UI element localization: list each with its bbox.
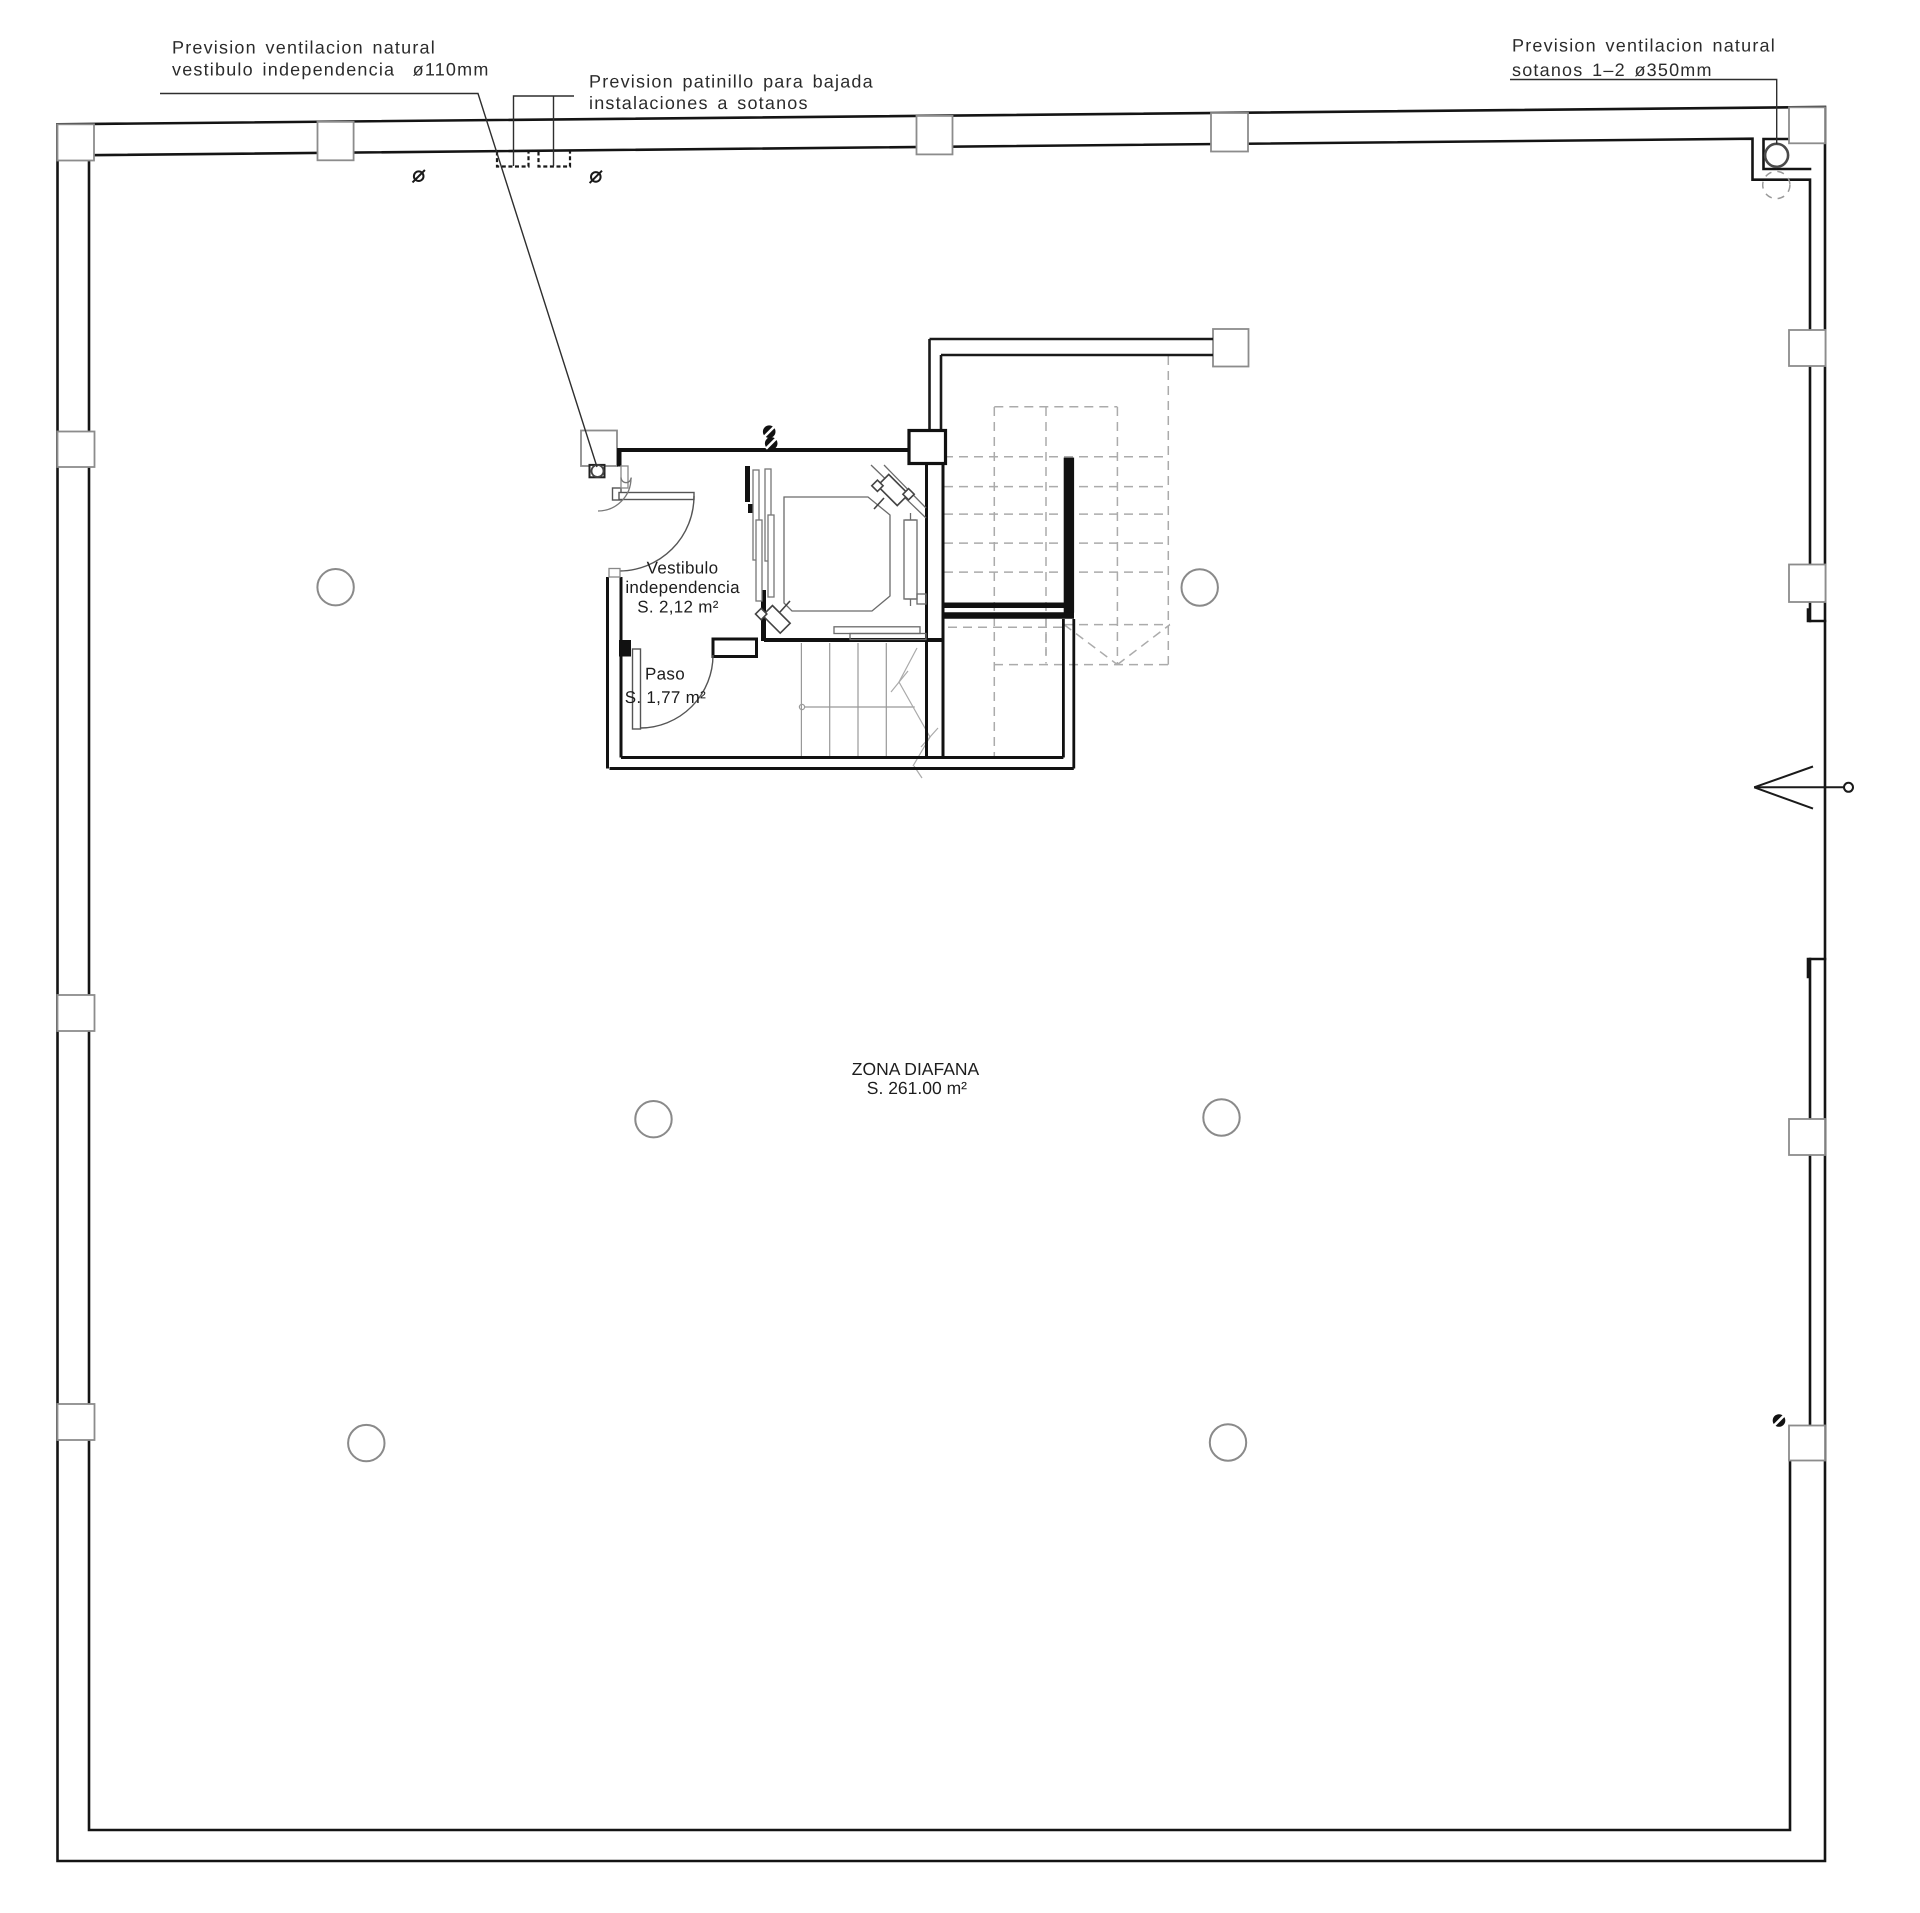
svg-text:Prevision ventilacion natural: Prevision ventilacion natural [1512,36,1776,56]
svg-text:independencia: independencia [625,578,740,597]
svg-text:vestibulo independencia ø110m: vestibulo independencia ø110mm [172,60,490,80]
svg-text:S. 1,77 m²: S. 1,77 m² [625,688,706,707]
svg-text:Prevision ventilacion natural: Prevision ventilacion natural [172,38,436,58]
svg-text:Paso: Paso [645,664,685,683]
svg-text:S. 2,12 m²: S. 2,12 m² [637,598,718,617]
svg-text:sotanos 1–2 ø350mm: sotanos 1–2 ø350mm [1512,60,1713,80]
svg-text:instalaciones a sotanos: instalaciones a sotanos [589,93,809,113]
svg-text:ZONA DIAFANA: ZONA DIAFANA [852,1059,980,1079]
svg-text:S. 261.00 m²: S. 261.00 m² [867,1078,967,1098]
svg-text:Vestibulo: Vestibulo [647,559,719,578]
svg-text:Prevision patinillo para bajad: Prevision patinillo para bajada [589,72,874,92]
